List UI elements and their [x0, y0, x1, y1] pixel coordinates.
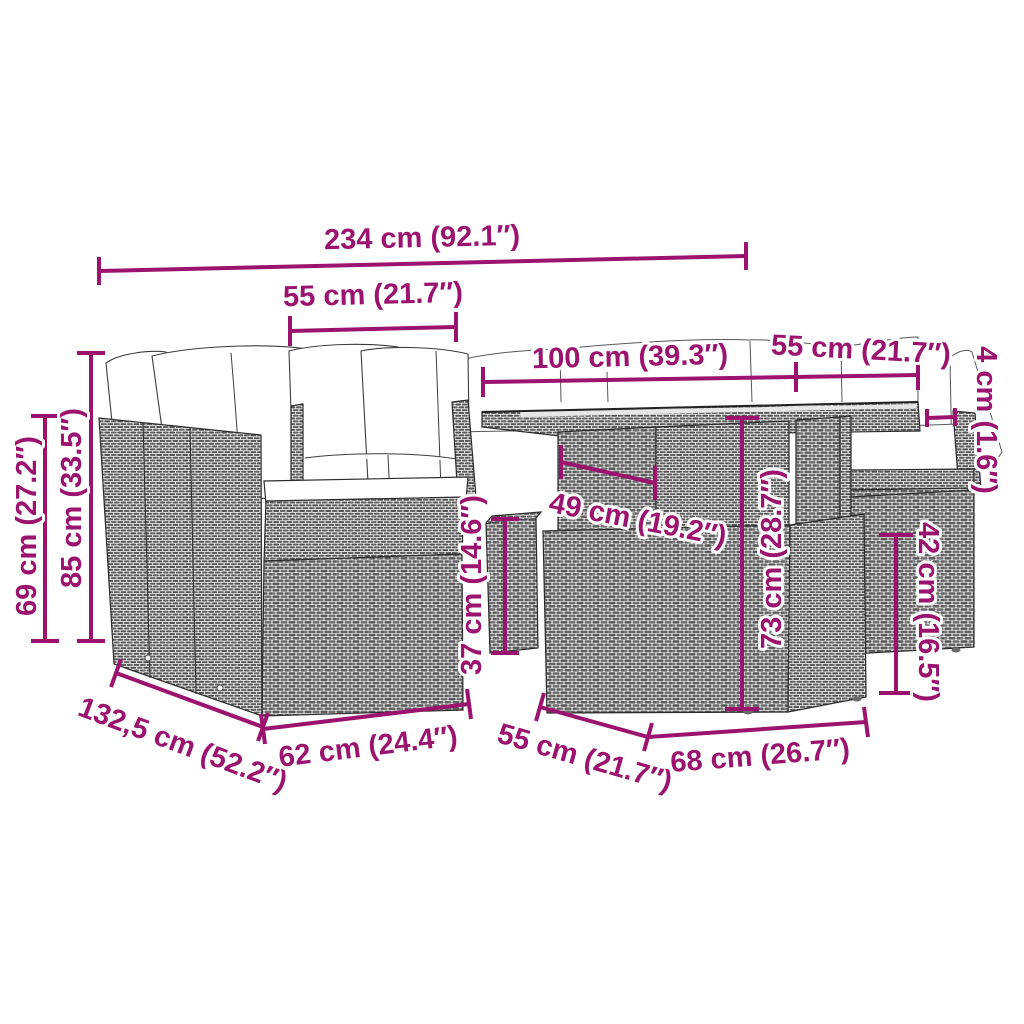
- svg-text:73 cm (28.7″): 73 cm (28.7″): [756, 469, 788, 649]
- svg-text:4 cm (1.6″): 4 cm (1.6″): [970, 346, 1002, 494]
- svg-text:100 cm (39.3″): 100 cm (39.3″): [532, 339, 729, 375]
- svg-text:55 cm (21.7″): 55 cm (21.7″): [283, 277, 464, 313]
- svg-text:42 cm (16.5″): 42 cm (16.5″): [912, 522, 944, 702]
- svg-text:62 cm (24.4″): 62 cm (24.4″): [277, 720, 459, 774]
- svg-text:69 cm (27.2″): 69 cm (27.2″): [11, 436, 43, 616]
- svg-text:68 cm (26.7″): 68 cm (26.7″): [669, 733, 851, 779]
- svg-text:85 cm (33.5″): 85 cm (33.5″): [56, 408, 88, 588]
- svg-text:234 cm (92.1″): 234 cm (92.1″): [324, 220, 521, 256]
- svg-text:37 cm (14.6″): 37 cm (14.6″): [456, 495, 488, 675]
